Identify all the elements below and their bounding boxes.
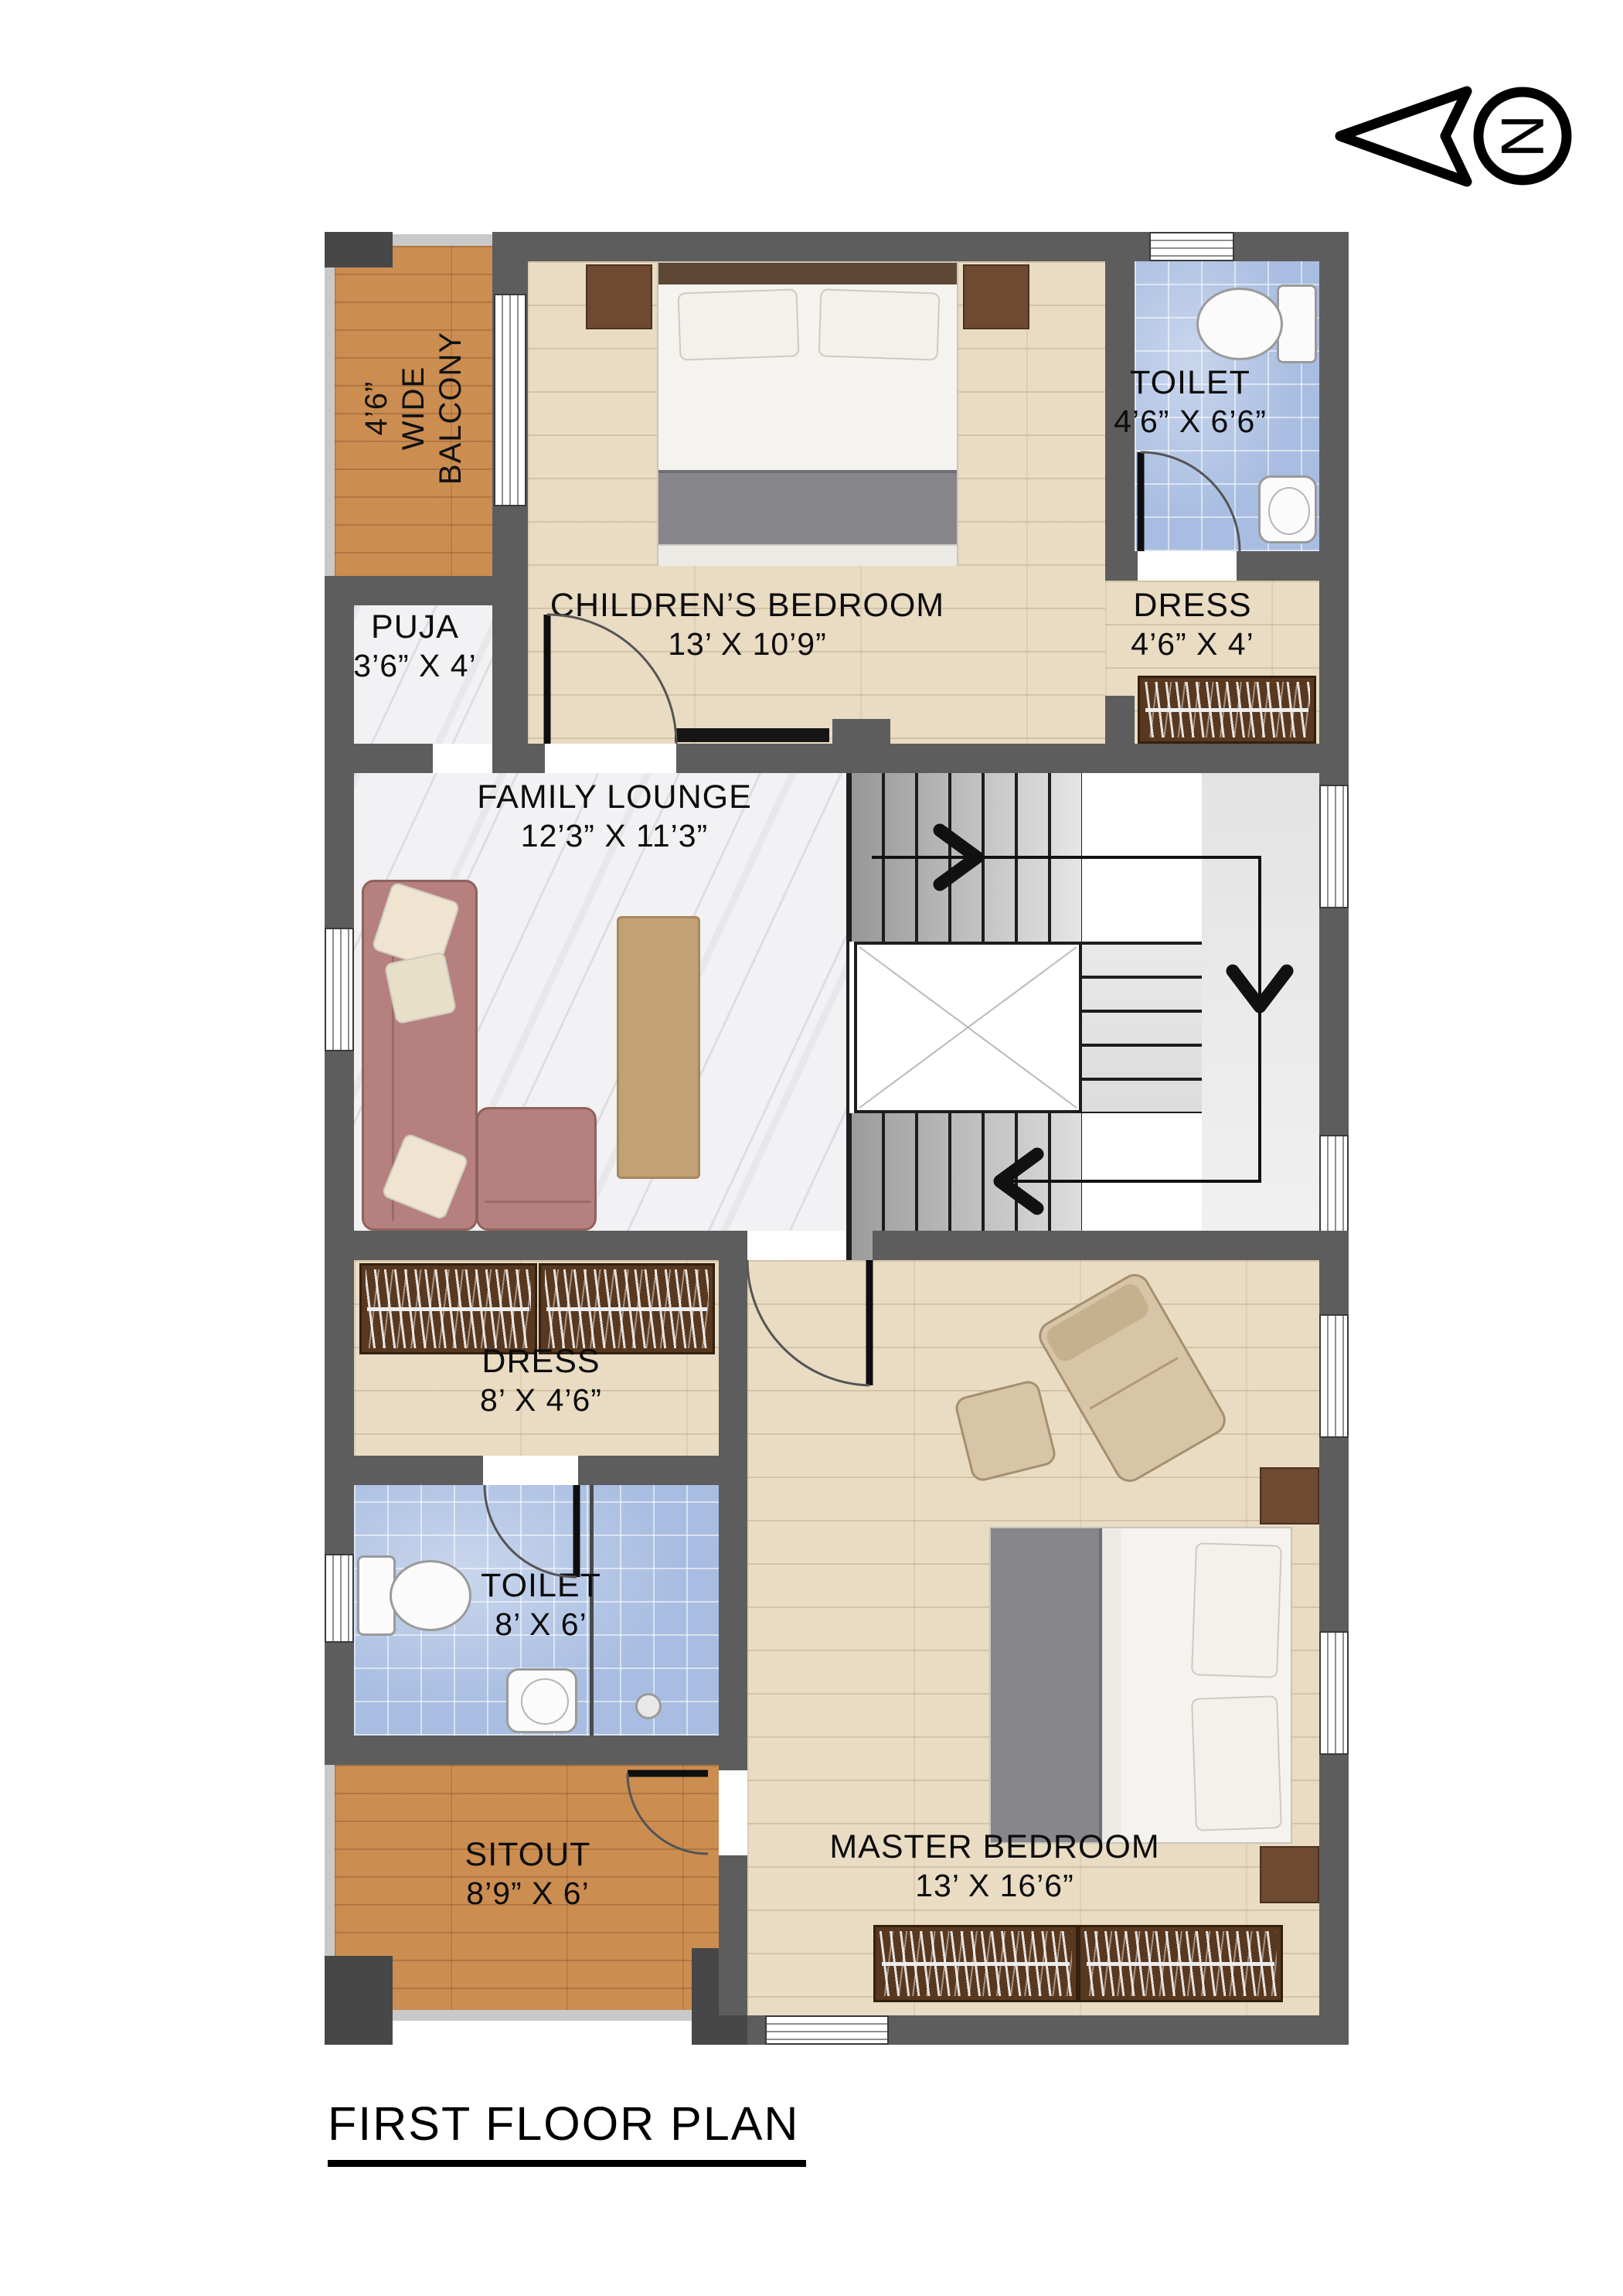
room-name: CHILDREN’S BEDROOM	[550, 586, 944, 625]
wall-bedroom-lounge	[325, 744, 433, 773]
shower-head	[635, 1693, 662, 1719]
stair-lounge-divider	[846, 773, 849, 1260]
tv-console	[675, 728, 829, 742]
wardrobe	[539, 1263, 715, 1354]
wall-lounge-lower	[325, 1231, 747, 1260]
window	[765, 2015, 889, 2045]
room-dims: 13’ X 10’9”	[550, 625, 944, 663]
armchair-seat-line	[1090, 1357, 1179, 1409]
wall-lounge-lower	[873, 1231, 1349, 1260]
wall-master-left	[719, 1260, 747, 1770]
room-dims: 4’6” X 6’6”	[1114, 402, 1267, 441]
balcony-dims: 4’6”	[359, 381, 393, 436]
bed-runner	[991, 1528, 1102, 1842]
pillow	[1191, 1542, 1282, 1678]
bed-sheet-fold	[1102, 1528, 1121, 1842]
bed-blanket	[658, 470, 957, 547]
basin-bowl	[1268, 487, 1310, 535]
wardrobe	[873, 1925, 1078, 2002]
plan-title: FIRST FLOOR PLAN	[328, 2097, 806, 2167]
wall-right	[1319, 232, 1349, 785]
pillow	[678, 288, 800, 360]
room-dims: 4’6” X 4’	[1131, 625, 1254, 663]
wall-top	[492, 232, 1149, 261]
master-bed	[989, 1527, 1292, 1844]
wall-bedroom-lounge	[676, 744, 1319, 773]
wall-right	[1319, 1438, 1349, 1631]
sofa-seat-line	[485, 1201, 591, 1203]
wall-toilet-upper-bottom	[1105, 551, 1138, 581]
room-dims: 8’9” X 6’	[465, 1874, 591, 1913]
north-arrow-icon	[1340, 91, 1467, 182]
stair-flight-up	[849, 773, 1082, 942]
sitout-parapet-left	[325, 1765, 335, 1956]
master-bedroom-label: MASTER BEDROOM 13’ X 16’6”	[829, 1828, 1159, 1905]
wall-dress-upper-left	[1105, 696, 1135, 744]
childrens-bed	[657, 261, 958, 564]
bed-headboard	[658, 263, 957, 284]
family-lounge-label: FAMILY LOUNGE 12’3” X 11’3”	[477, 778, 752, 855]
balcony-name-2: BALCONY	[434, 332, 468, 485]
room-dims: 8’ X 4’6”	[480, 1381, 602, 1419]
wall-dress-toilet	[325, 1456, 483, 1485]
north-letter: N	[1489, 114, 1557, 158]
room-dims: 3’6” X 4’	[353, 646, 476, 685]
room-name: DRESS	[1131, 586, 1254, 625]
floor-plan-page: 4’6” WIDE BALCONY PUJA 3’6” X 4’ CHILDRE…	[0, 0, 1623, 2296]
wall-right	[1319, 1259, 1349, 1314]
stair-landing-upper	[1202, 773, 1319, 1260]
window	[1149, 232, 1234, 261]
window	[1319, 1314, 1349, 1438]
balcony-name-1: WIDE	[396, 366, 430, 450]
wall-bedroom-lounge	[528, 744, 545, 773]
sitout-label: SITOUT 8’9” X 6’	[465, 1835, 591, 1913]
wall-bottom	[747, 2015, 765, 2045]
room-name: MASTER BEDROOM	[829, 1828, 1159, 1866]
wardrobe	[1138, 676, 1316, 744]
wall-dress-toilet	[578, 1456, 747, 1485]
room-name: PUJA	[353, 608, 476, 646]
balcony-parapet-left	[325, 234, 335, 576]
toilet-upper-label: TOILET 4’6” X 6’6”	[1114, 363, 1267, 441]
nightstand	[1260, 1467, 1319, 1524]
pillow	[1191, 1695, 1282, 1831]
stair-void	[854, 942, 1082, 1113]
balcony-sliding-door	[494, 294, 526, 506]
lounge-rug	[617, 916, 700, 1179]
dress-upper-label: DRESS 4’6” X 4’	[1131, 586, 1254, 663]
childrens-bedroom-label: CHILDREN’S BEDROOM 13’ X 10’9”	[550, 586, 944, 663]
wall-right	[1319, 908, 1349, 1135]
toilet-lower-label: TOILET 8’ X 6’	[481, 1566, 601, 1644]
room-dims: 13’ X 16’6”	[829, 1866, 1159, 1905]
room-name: TOILET	[1114, 363, 1267, 402]
window	[325, 928, 354, 1051]
wardrobe	[1078, 1925, 1283, 2002]
toilet-bowl	[390, 1560, 471, 1631]
wall-toilet-upper-bottom	[1237, 551, 1319, 581]
nightstand	[586, 264, 652, 329]
washbasin	[1258, 475, 1317, 543]
room-dims: 8’ X 6’	[481, 1605, 601, 1644]
room-name: SITOUT	[465, 1835, 591, 1874]
lounge-sofa-foot	[476, 1107, 597, 1231]
room-name: FAMILY LOUNGE	[477, 778, 752, 816]
wardrobe	[359, 1263, 537, 1354]
pillow	[818, 288, 941, 360]
sofa-pillow	[384, 952, 458, 1025]
wall-master-left	[719, 1855, 747, 2015]
wall-nib	[832, 719, 890, 744]
toilet-bowl	[1196, 288, 1283, 360]
wall-balcony-puja	[325, 576, 528, 605]
bed-sheet-fold	[658, 544, 957, 566]
corner-column	[325, 232, 393, 267]
basin-bowl	[521, 1678, 569, 1725]
stair-flight-side	[1082, 942, 1202, 1113]
window	[325, 1554, 354, 1643]
window	[1319, 1631, 1349, 1755]
wall-bottom	[889, 2015, 1349, 2045]
corner-column	[325, 1956, 393, 2045]
sitout-parapet-bottom	[393, 2010, 692, 2021]
balcony-label: 4’6” WIDE BALCONY	[358, 332, 469, 485]
wall-right	[1319, 1755, 1349, 2045]
nightstand	[1260, 1846, 1319, 1903]
window	[1319, 785, 1349, 908]
washbasin	[506, 1668, 577, 1733]
room-name: DRESS	[480, 1342, 602, 1381]
dress-lower-label: DRESS 8’ X 4’6”	[480, 1342, 602, 1419]
nightstand	[963, 264, 1029, 329]
room-dims: 12’3” X 11’3”	[477, 816, 752, 855]
puja-label: PUJA 3’6” X 4’	[353, 608, 476, 685]
north-indicator: N	[1328, 68, 1598, 211]
room-name: TOILET	[481, 1566, 601, 1605]
wall-toilet-sitout	[325, 1736, 747, 1765]
